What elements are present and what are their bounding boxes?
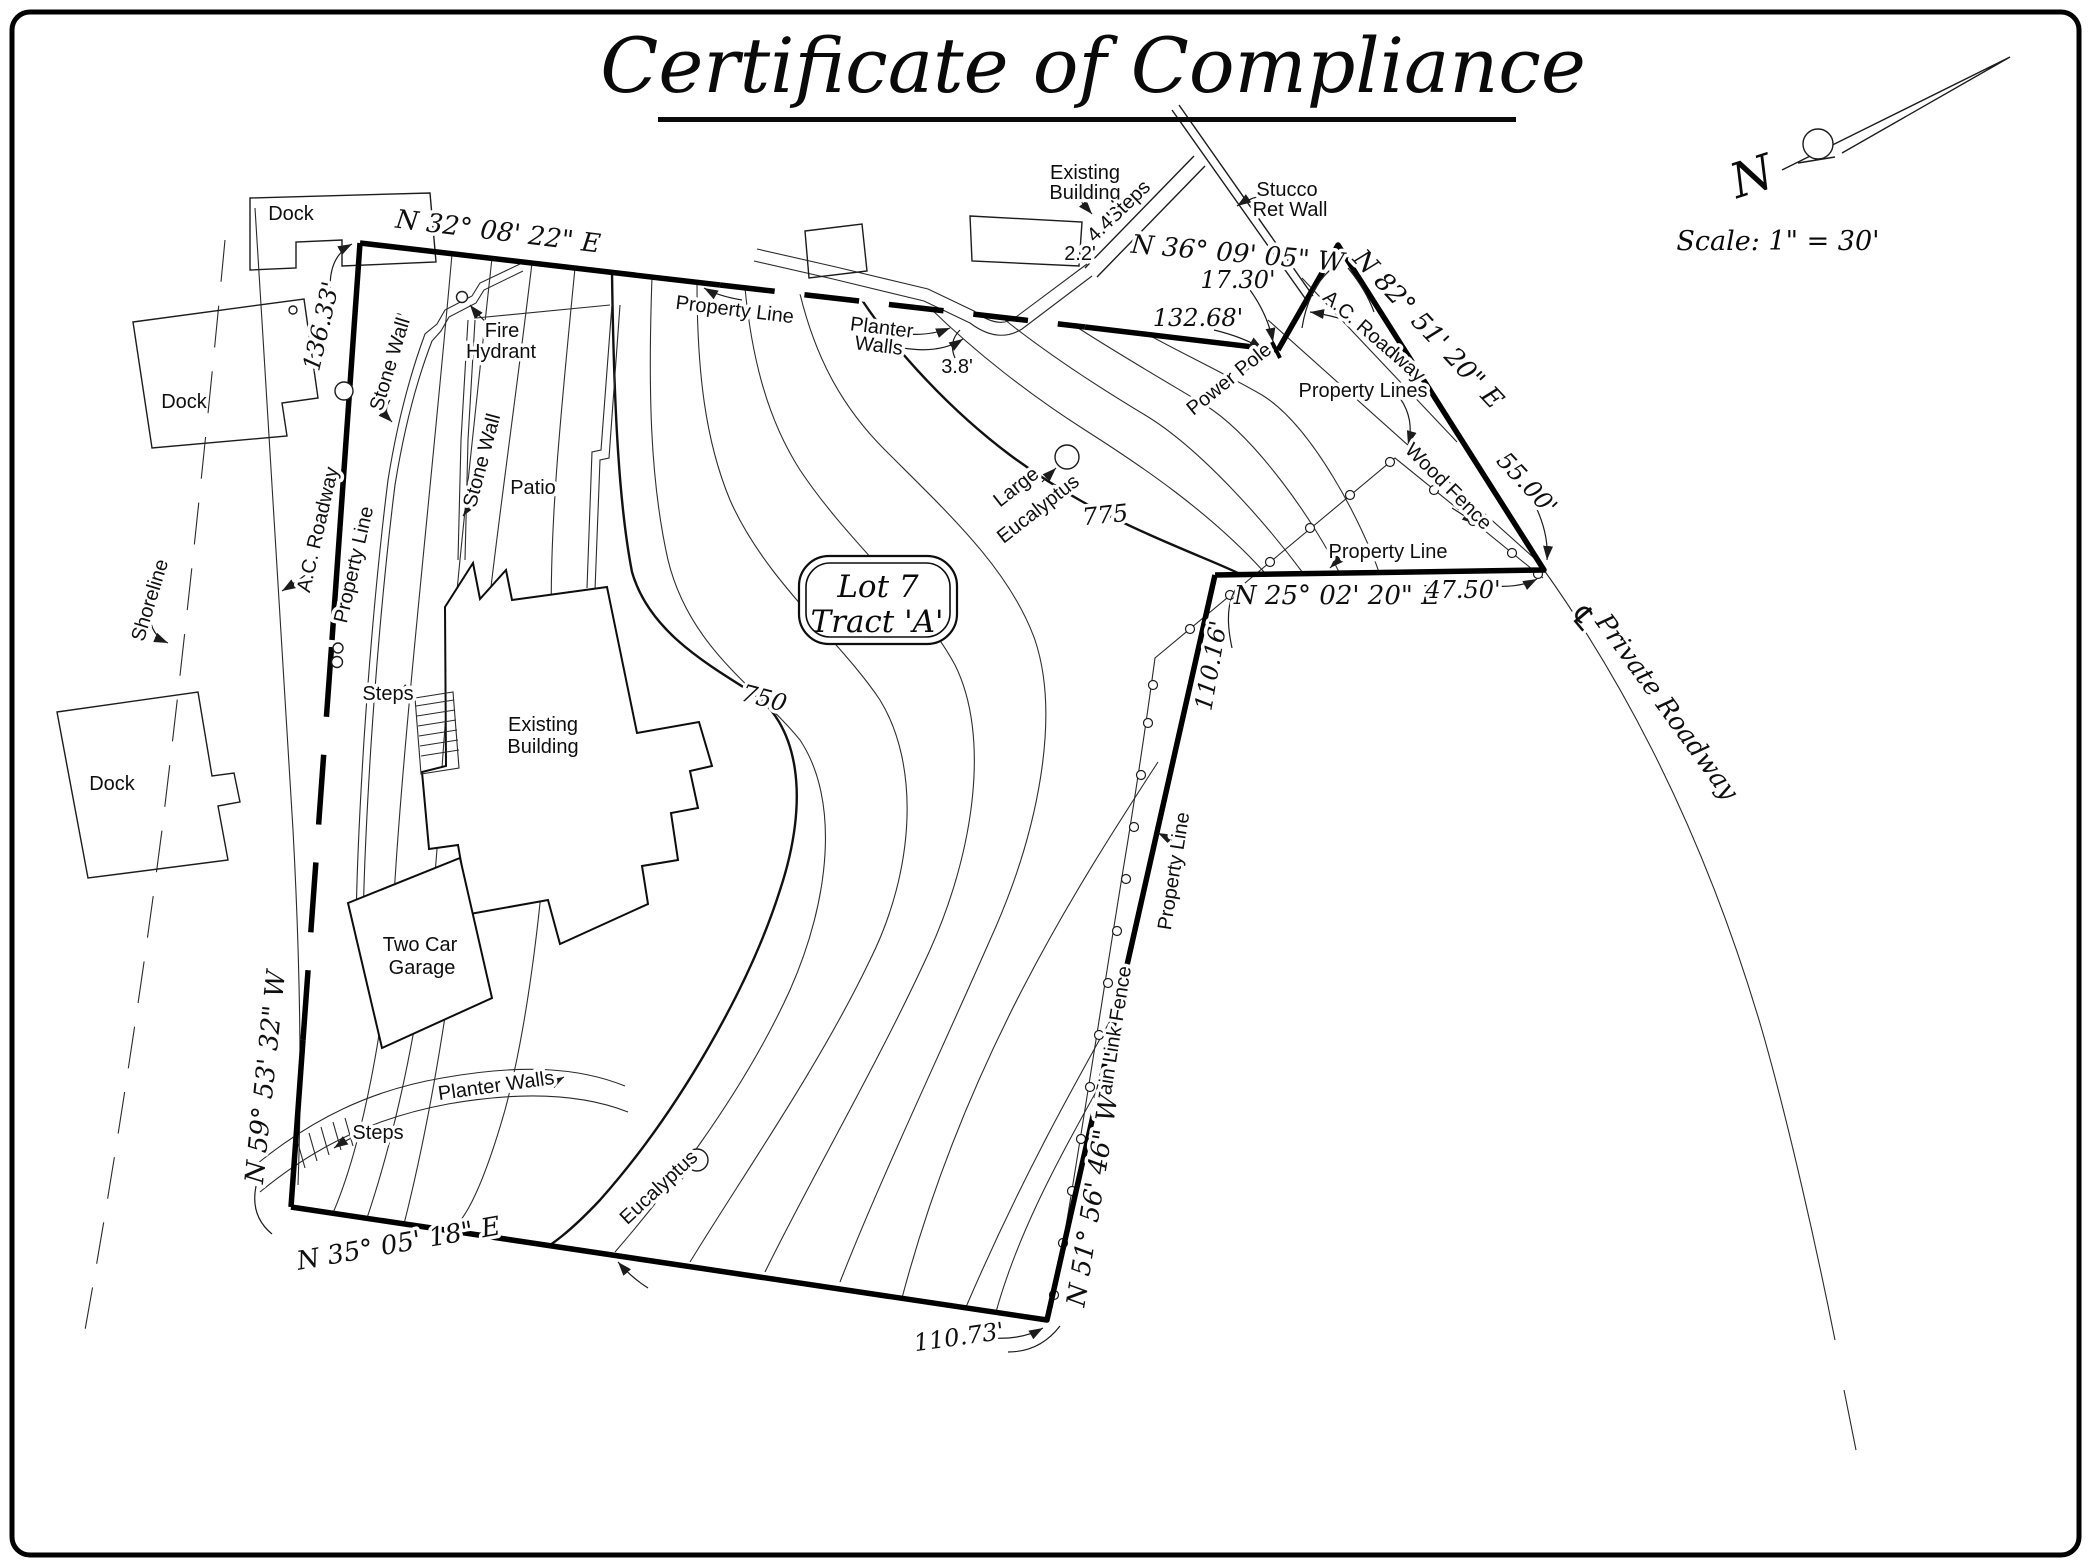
distance-136-33: 136.33' xyxy=(297,279,345,374)
bearing-n59: N 59° 53' 32" W xyxy=(240,967,293,1186)
private-roadway-centerline xyxy=(1544,570,1835,1340)
dock-label: Dock xyxy=(161,391,208,413)
leaders xyxy=(150,196,1547,1352)
dock-outline xyxy=(57,692,240,878)
leader-arrow xyxy=(1042,468,1056,482)
north-arrow-circle xyxy=(1803,129,1833,159)
large-eucalyptus-symbol xyxy=(1055,445,1079,469)
patio-label: Patio xyxy=(510,477,556,499)
power-pole-label: Power Pole xyxy=(1183,339,1276,420)
contour-line xyxy=(745,288,974,1272)
contour-label-750: 750 xyxy=(738,679,789,718)
patio-wall xyxy=(595,305,620,590)
dimension-2-2: 2.2' xyxy=(1064,243,1096,265)
patio-wall xyxy=(587,304,612,588)
private-roadway-label: Private Roadway xyxy=(1588,608,1744,807)
page-title: Certificate of Compliance xyxy=(600,21,1586,110)
neighbor-building xyxy=(805,224,867,278)
planter-walls-label: Planter Walls xyxy=(437,1067,556,1105)
steps-label: Steps xyxy=(362,683,413,705)
boundary-edge xyxy=(291,1040,303,1207)
property-lines-label: Property Lines xyxy=(1299,380,1428,402)
wood-fence-label: Wood Fence xyxy=(1401,439,1496,534)
leader-arc xyxy=(1250,290,1273,342)
fire-hydrant-symbol xyxy=(457,292,468,303)
existing-building-label: Existing xyxy=(508,714,578,736)
north-arrow: N xyxy=(1722,57,2010,210)
boundary-monument-circle xyxy=(335,382,353,400)
dock-label: Dock xyxy=(89,773,136,795)
small-circle xyxy=(332,657,343,668)
title-underline xyxy=(658,117,1516,122)
title-block: Certificate of Compliance xyxy=(600,21,1586,122)
dock-label: Dock xyxy=(268,203,315,225)
contour-line xyxy=(930,308,1265,573)
existing-building-label: Building xyxy=(507,736,578,758)
dimension-3-8: 3.8' xyxy=(941,356,973,378)
lot-label-box: Lot 7 Tract 'A' xyxy=(799,556,957,644)
contour-line xyxy=(1072,324,1340,574)
property-line-label: Property Line xyxy=(1329,541,1448,563)
stucco-ret-wall-label: Stucco xyxy=(1256,179,1317,201)
contour-line xyxy=(1145,333,1380,575)
distance-17-30: 17.30' xyxy=(1200,266,1275,294)
corner-arc xyxy=(1008,1326,1060,1352)
tract-name: Tract 'A' xyxy=(810,604,943,640)
planter-wall-top xyxy=(757,249,1087,322)
distance-47-50: 47.50' xyxy=(1424,576,1500,604)
distance-55-00: 55.00' xyxy=(1491,446,1563,520)
stone-wall-label: Stone Wall xyxy=(459,411,505,509)
leader-arrow xyxy=(618,1262,648,1288)
north-letter: N xyxy=(1722,143,1782,210)
fire-hydrant-label: Hydrant xyxy=(466,341,536,363)
existing-building-label: Existing xyxy=(1050,162,1120,184)
distance-110-73: 110.73' xyxy=(912,1317,1006,1357)
bearing-n25: N 25° 02' 20" E xyxy=(1233,581,1440,611)
scale-label: Scale: 1" = 30' xyxy=(1676,226,1879,257)
distance-132-68: 132.68' xyxy=(1153,304,1244,332)
garage-label: Two Car xyxy=(383,934,458,956)
boundary-edge-dashed xyxy=(303,640,332,1040)
planter-wall-bottom xyxy=(260,1096,628,1192)
corner-arc xyxy=(255,1186,272,1234)
stucco-ret-wall-label: Ret Wall xyxy=(1253,199,1328,221)
plat-drawing: Lot 7 Tract 'A' Dock Dock Dock Shoreline… xyxy=(0,0,2091,1567)
planter-walls-label: Walls xyxy=(853,332,903,360)
leader-arrow xyxy=(1400,398,1410,445)
eucalyptus-label: Eucalyptus xyxy=(616,1146,703,1229)
survey-sheet: Lot 7 Tract 'A' Dock Dock Dock Shoreline… xyxy=(0,0,2091,1567)
contour-label-775: 775 xyxy=(1081,499,1129,532)
shoreline-label: Shoreline xyxy=(127,557,173,644)
lot-number: Lot 7 xyxy=(836,569,919,605)
bearing-n51: N 51° 56' 46" W xyxy=(1061,1091,1125,1310)
contour-line xyxy=(690,282,907,1262)
steps-label: Steps xyxy=(352,1122,403,1144)
private-roadway-centerline xyxy=(1844,1390,1856,1450)
stone-wall-label: Stone Wall xyxy=(366,315,415,413)
steps-hatch-bottom xyxy=(297,1118,353,1168)
distance-110-16: 110.16' xyxy=(1189,619,1232,713)
small-circle xyxy=(333,643,343,653)
existing-building-label: Building xyxy=(1049,182,1120,204)
property-line-label: Property Line xyxy=(674,292,795,328)
fire-hydrant-label: Fire xyxy=(485,320,519,342)
garage-label: Garage xyxy=(389,957,456,979)
roadways xyxy=(1268,278,1856,1450)
dock-outline xyxy=(133,299,318,448)
small-circle xyxy=(289,306,297,314)
patio-edge xyxy=(476,305,610,318)
